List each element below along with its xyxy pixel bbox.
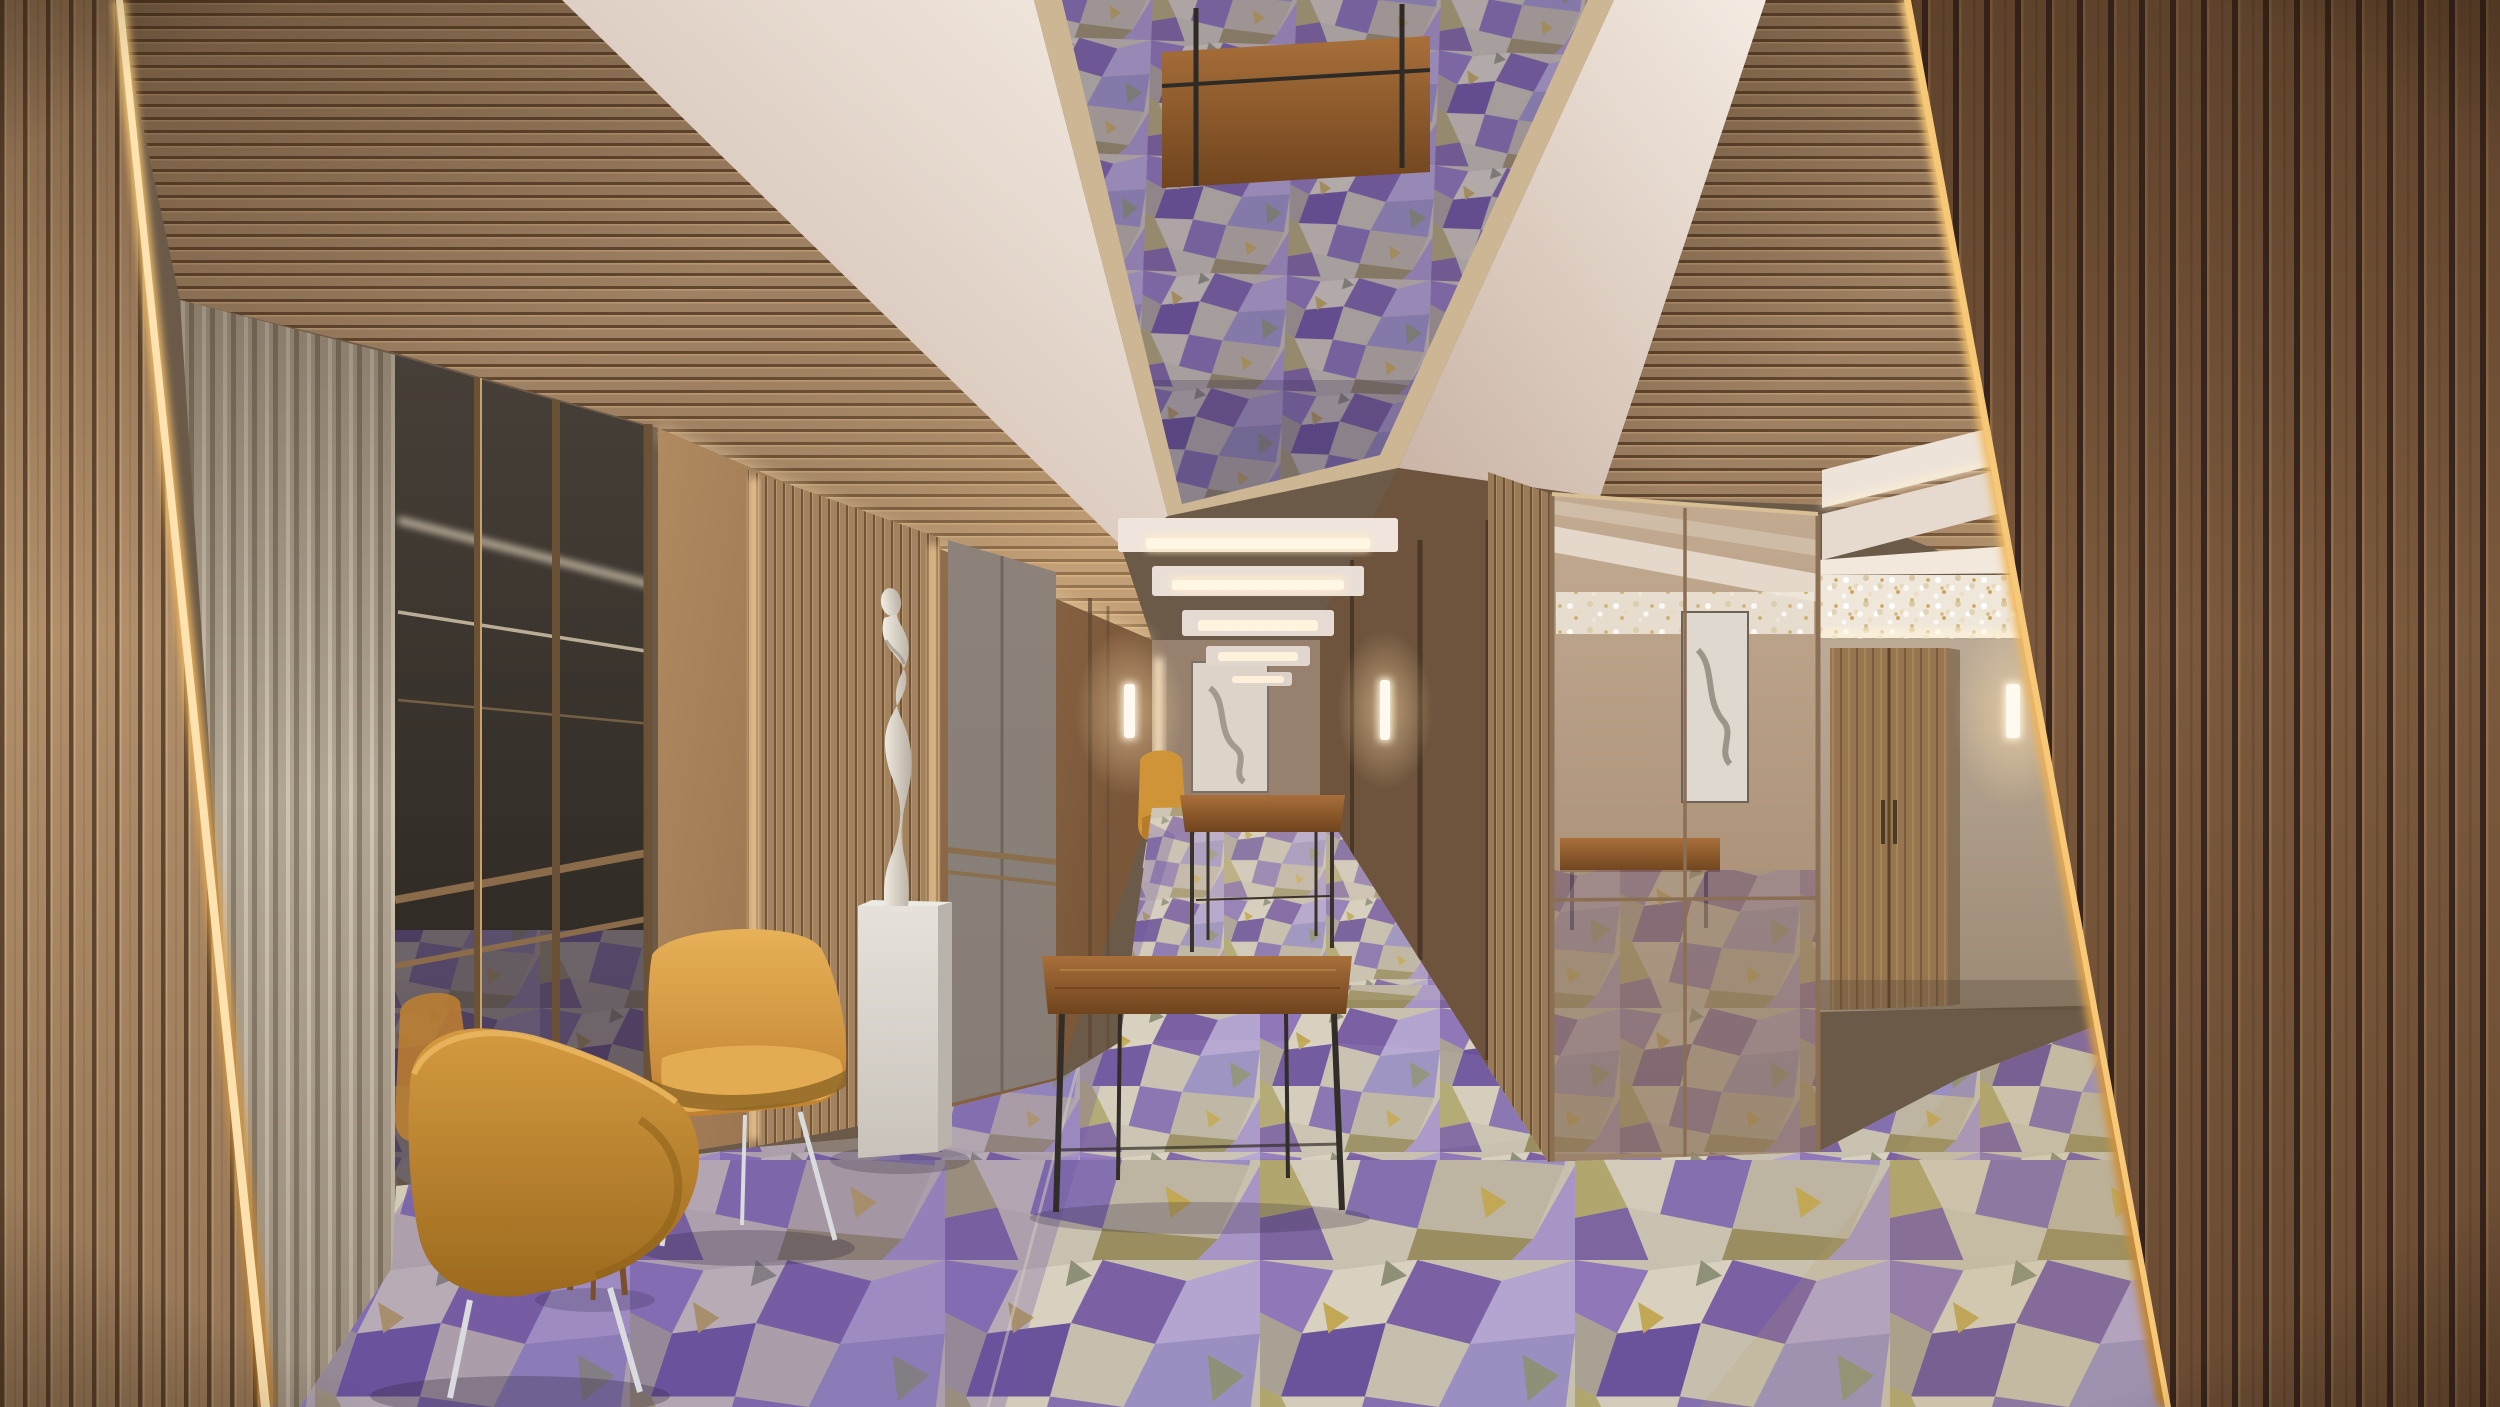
hotel-corridor-rendering (0, 0, 2500, 1407)
scene-canvas (0, 0, 2500, 1407)
vignette-overlay (0, 0, 2500, 1407)
